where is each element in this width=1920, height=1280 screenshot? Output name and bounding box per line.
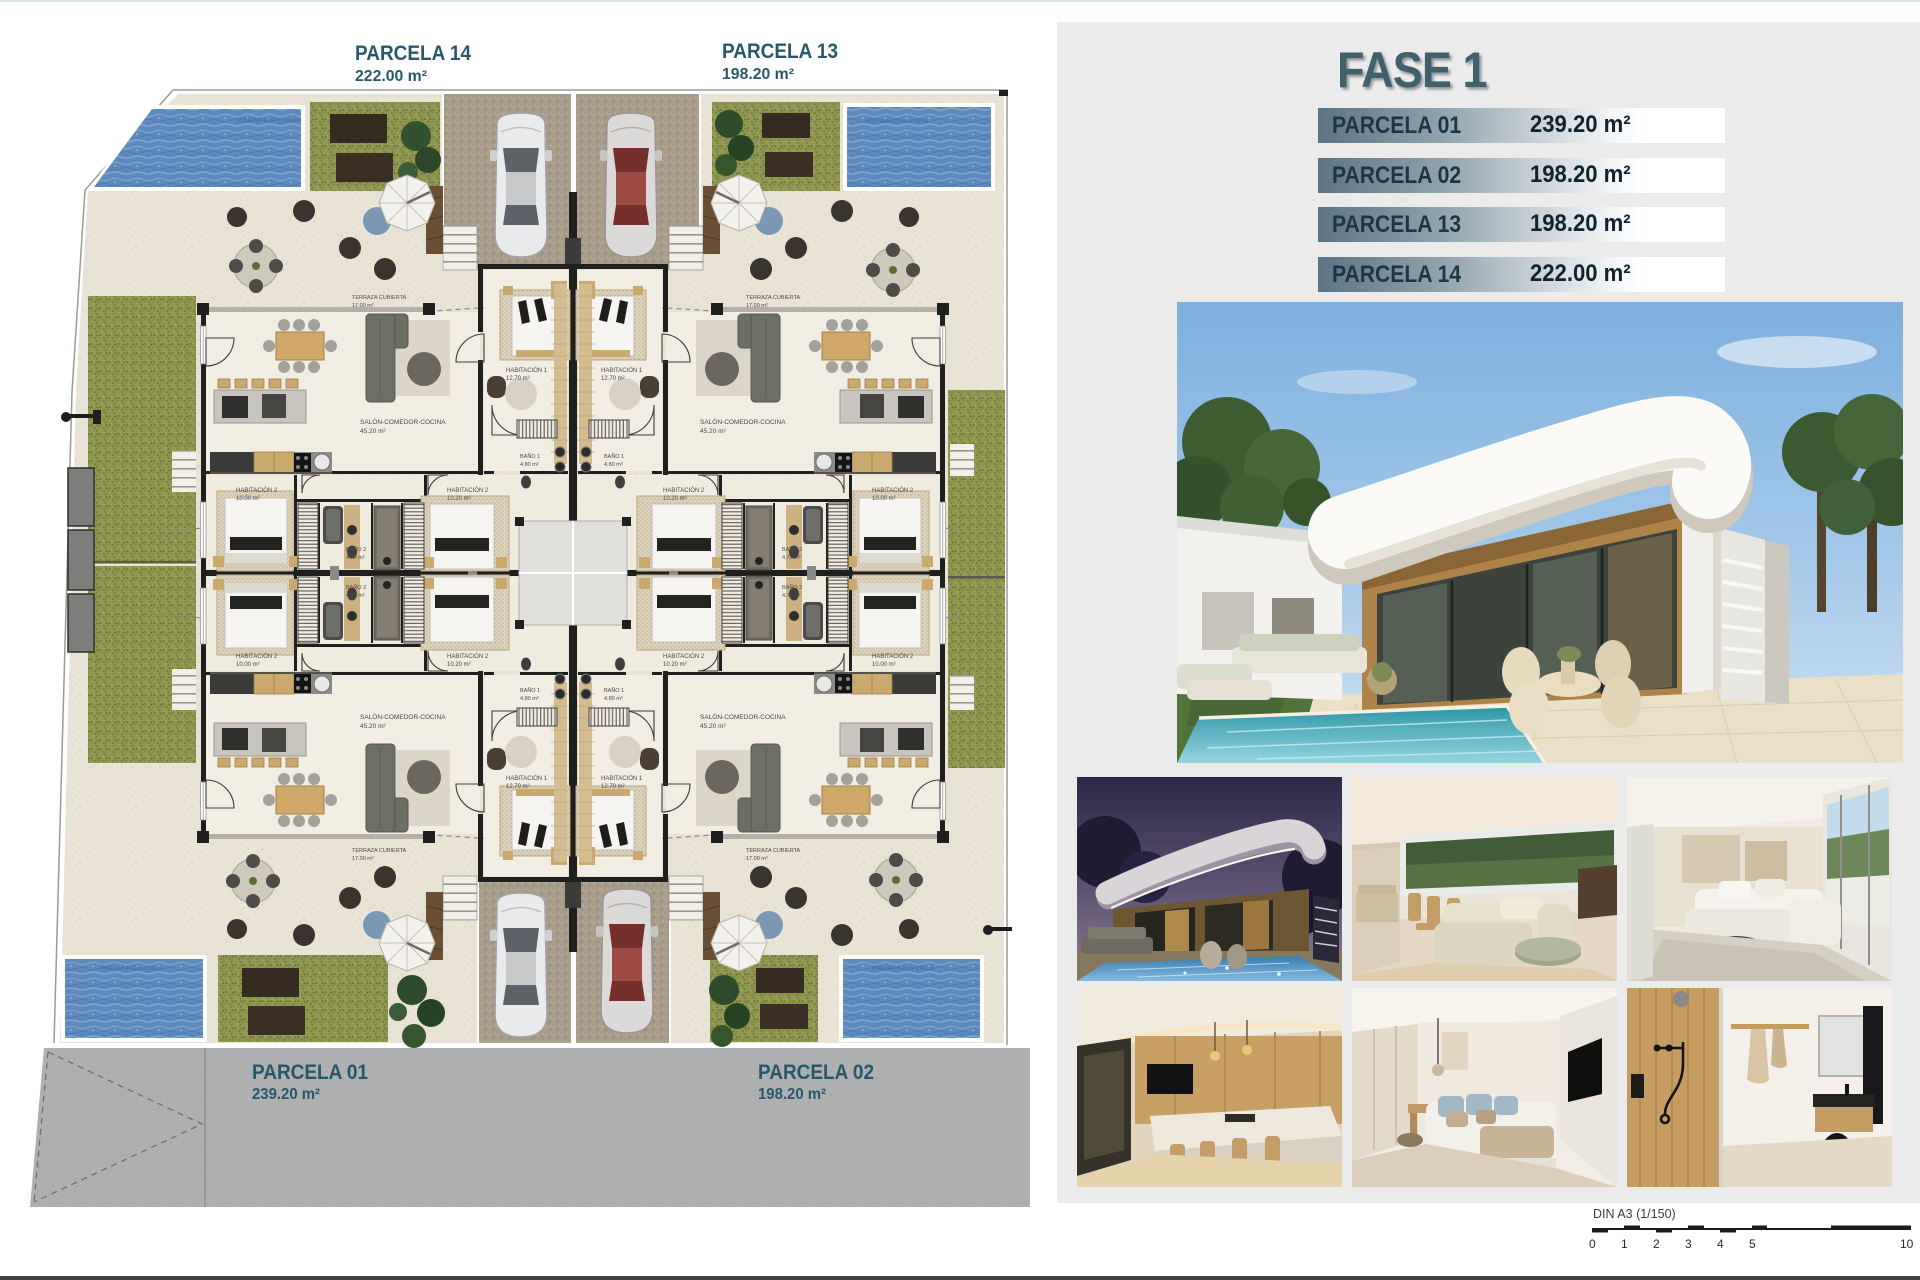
svg-text:HABITACIÓN 1: HABITACIÓN 1 — [601, 775, 643, 782]
svg-text:PARCELA 13: PARCELA 13 — [722, 40, 838, 63]
svg-text:4.80 m²: 4.80 m² — [520, 696, 539, 702]
svg-text:45.20 m²: 45.20 m² — [360, 723, 386, 730]
svg-text:PISCINA 4.00 x 2.00 m: PISCINA 4.00 x 2.00 m — [238, 118, 300, 124]
svg-text:0: 0 — [1589, 1237, 1596, 1251]
svg-text:12.70 m²: 12.70 m² — [601, 784, 625, 790]
svg-text:4.70 m²: 4.70 m² — [782, 593, 801, 599]
svg-text:10.00 m²: 10.00 m² — [236, 496, 260, 502]
svg-text:HABITACIÓN 2: HABITACIÓN 2 — [663, 653, 705, 660]
svg-text:PARCELA 14: PARCELA 14 — [355, 42, 471, 65]
svg-text:5: 5 — [1749, 1237, 1756, 1251]
svg-text:12.70 m²: 12.70 m² — [601, 376, 625, 382]
svg-text:PARCELA 02: PARCELA 02 — [758, 1061, 874, 1084]
svg-text:4.80 m²: 4.80 m² — [520, 462, 539, 468]
svg-text:10.20 m²: 10.20 m² — [663, 662, 687, 668]
svg-text:HABITACIÓN 2: HABITACIÓN 2 — [447, 487, 489, 494]
svg-text:45.20 m²: 45.20 m² — [360, 428, 386, 435]
svg-text:17.00 m²: 17.00 m² — [352, 303, 374, 309]
svg-text:PISCINA 4.00 x 2.00 m: PISCINA 4.00 x 2.00 m — [866, 119, 928, 125]
svg-text:1: 1 — [1621, 1237, 1628, 1251]
svg-text:BAÑO 1: BAÑO 1 — [520, 687, 540, 694]
svg-text:10: 10 — [1900, 1237, 1914, 1251]
svg-text:17.00 m²: 17.00 m² — [352, 856, 374, 862]
svg-text:239.20 m²: 239.20 m² — [252, 1086, 320, 1103]
svg-text:SALÓN-COMEDOR-COCINA: SALÓN-COMEDOR-COCINA — [700, 417, 786, 426]
svg-text:4: 4 — [1717, 1237, 1724, 1251]
svg-text:45.20 m²: 45.20 m² — [700, 428, 726, 435]
svg-text:TERRAZA CUBIERTA: TERRAZA CUBIERTA — [352, 848, 407, 854]
svg-text:HABITACIÓN 1: HABITACIÓN 1 — [601, 367, 643, 374]
svg-text:PISCINA 4.00 x 2.00 m: PISCINA 4.00 x 2.00 m — [100, 966, 162, 972]
svg-text:HABITACIÓN 1: HABITACIÓN 1 — [506, 775, 548, 782]
svg-text:12.70 m²: 12.70 m² — [506, 784, 530, 790]
svg-text:HABITACIÓN 2: HABITACIÓN 2 — [663, 487, 705, 494]
svg-text:BAÑO 1: BAÑO 1 — [604, 453, 624, 460]
svg-text:HABITACIÓN 2: HABITACIÓN 2 — [236, 487, 278, 494]
svg-text:10.00 m²: 10.00 m² — [872, 496, 896, 502]
svg-text:HABITACIÓN 2: HABITACIÓN 2 — [447, 653, 489, 660]
svg-text:45.20 m²: 45.20 m² — [700, 723, 726, 730]
svg-text:SALÓN-COMEDOR-COCINA: SALÓN-COMEDOR-COCINA — [360, 417, 446, 426]
svg-text:HABITACIÓN 1: HABITACIÓN 1 — [506, 367, 548, 374]
svg-text:TERRAZA CUBIERTA: TERRAZA CUBIERTA — [746, 848, 801, 854]
svg-text:12.70 m²: 12.70 m² — [506, 376, 530, 382]
svg-text:TERRAZA CUBIERTA: TERRAZA CUBIERTA — [746, 295, 801, 301]
svg-text:TERRAZA CUBIERTA: TERRAZA CUBIERTA — [352, 295, 407, 301]
svg-text:PISCINA 4.00 x 2.00 m: PISCINA 4.00 x 2.00 m — [872, 966, 934, 972]
svg-text:3: 3 — [1685, 1237, 1692, 1251]
svg-text:SALÓN-COMEDOR-COCINA: SALÓN-COMEDOR-COCINA — [360, 712, 446, 721]
svg-text:198.20 m²: 198.20 m² — [758, 1086, 826, 1103]
svg-text:4.80 m²: 4.80 m² — [604, 696, 623, 702]
svg-text:10.20 m²: 10.20 m² — [663, 496, 687, 502]
svg-text:4.70 m²: 4.70 m² — [346, 593, 365, 599]
svg-text:198.20 m²: 198.20 m² — [722, 66, 794, 83]
svg-text:HABITACIÓN 2: HABITACIÓN 2 — [236, 653, 278, 660]
svg-text:4.70 m²: 4.70 m² — [346, 555, 365, 561]
svg-text:BAÑO 2: BAÑO 2 — [782, 584, 802, 591]
svg-text:SALÓN-COMEDOR-COCINA: SALÓN-COMEDOR-COCINA — [700, 712, 786, 721]
svg-text:10.00 m²: 10.00 m² — [236, 662, 260, 668]
svg-text:PARCELA 01: PARCELA 01 — [252, 1061, 368, 1084]
svg-text:4.70 m²: 4.70 m² — [782, 555, 801, 561]
svg-text:2: 2 — [1653, 1237, 1660, 1251]
svg-text:BAÑO 1: BAÑO 1 — [604, 687, 624, 694]
svg-text:HABITACIÓN 2: HABITACIÓN 2 — [872, 487, 914, 494]
svg-text:10.00 m²: 10.00 m² — [872, 662, 896, 668]
svg-text:BAÑO 1: BAÑO 1 — [520, 453, 540, 460]
svg-text:17.00 m²: 17.00 m² — [746, 856, 768, 862]
svg-text:17.00 m²: 17.00 m² — [746, 303, 768, 309]
svg-text:10.20 m²: 10.20 m² — [447, 496, 471, 502]
svg-text:BAÑO 2: BAÑO 2 — [346, 546, 366, 553]
svg-text:10.20 m²: 10.20 m² — [447, 662, 471, 668]
svg-text:222.00 m²: 222.00 m² — [355, 68, 427, 85]
svg-text:BAÑO 2: BAÑO 2 — [782, 546, 802, 553]
svg-text:HABITACIÓN 2: HABITACIÓN 2 — [872, 653, 914, 660]
svg-text:BAÑO 2: BAÑO 2 — [346, 584, 366, 591]
svg-text:4.80 m²: 4.80 m² — [604, 462, 623, 468]
